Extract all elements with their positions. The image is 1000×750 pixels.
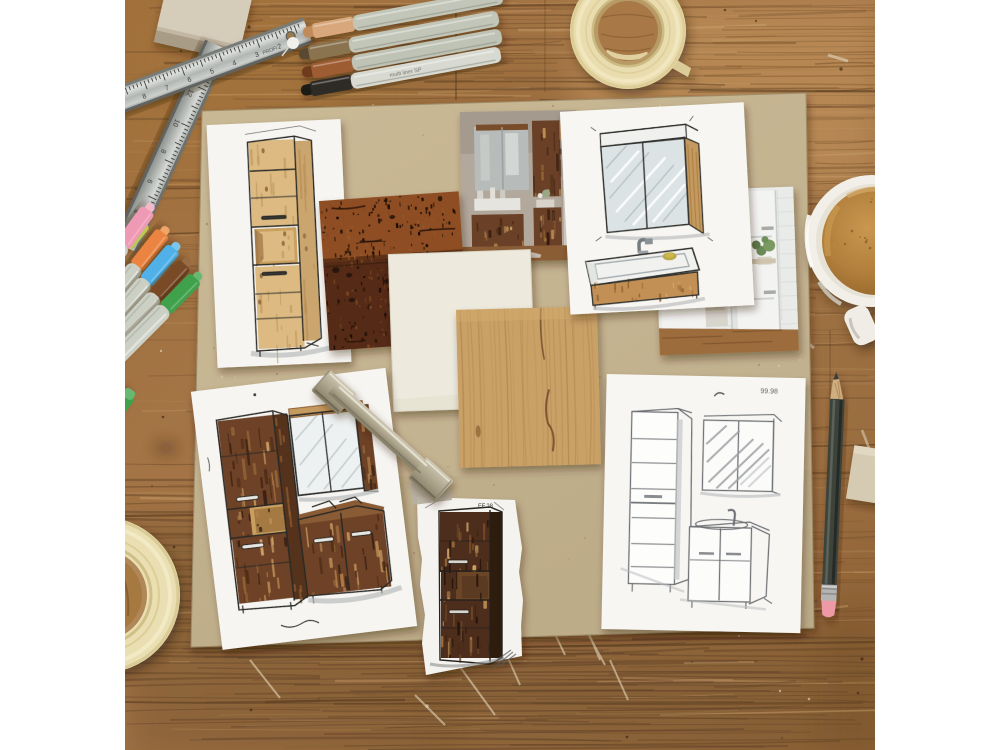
svg-text:FF.28: FF.28 (478, 504, 494, 510)
svg-text:99.98: 99.98 (760, 388, 778, 395)
